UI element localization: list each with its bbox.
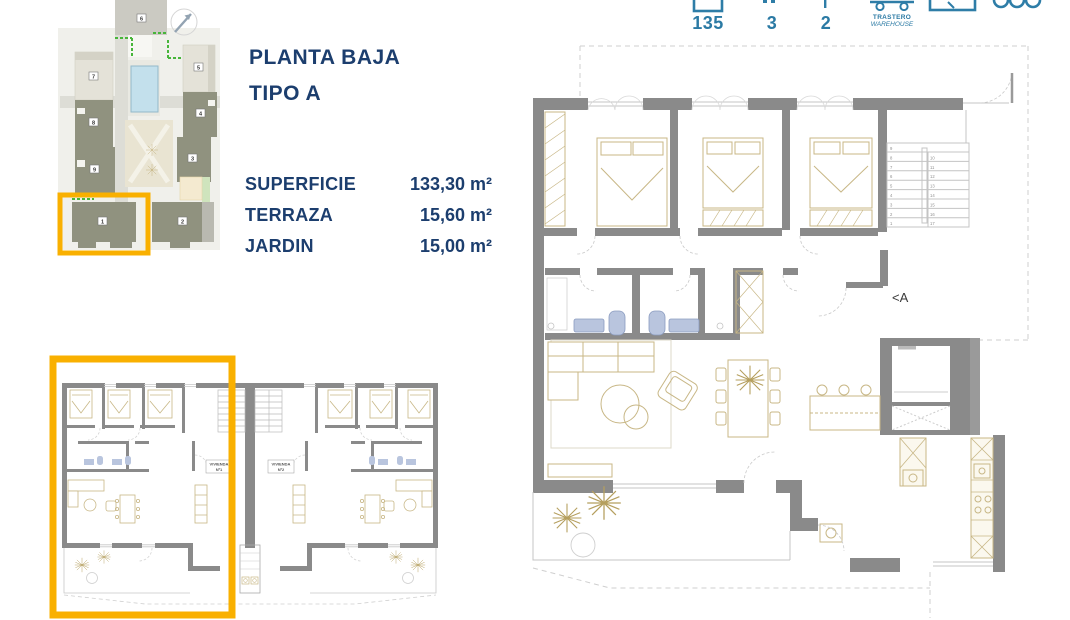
elevator (892, 346, 950, 430)
svg-text:8: 8 (890, 155, 893, 160)
stat-bathrooms: 2 (806, 0, 846, 34)
pool-waves-icon (992, 0, 1042, 10)
main-floor-plan: 9 8 7 6 5 4 3 2 1 10 11 12 13 14 15 16 1… (528, 40, 1045, 618)
laundry (820, 438, 926, 542)
spec-row-superficie: SUPERFICIE 133,30 m² (245, 174, 492, 205)
sofa (548, 340, 671, 448)
stat-built-area: 135 (688, 0, 728, 34)
bathrooms-value: 2 (806, 13, 846, 34)
unit1-label-line2: Nº1 (216, 467, 223, 472)
bed (703, 138, 763, 226)
unit1-label-line1: VIVIENDA (210, 462, 229, 467)
kitchen-island (810, 385, 880, 430)
closet (736, 271, 763, 333)
sideboard (548, 464, 612, 477)
kitchen-counter (971, 438, 993, 558)
svg-text:1: 1 (890, 221, 893, 226)
site-number-8: 8 (92, 120, 95, 126)
coffee-table (624, 405, 648, 429)
spec-label: TERRAZA (245, 205, 333, 226)
svg-text:9: 9 (890, 146, 893, 151)
page-title: PLANTA BAJA (249, 46, 400, 70)
units-garden-boundary (64, 595, 436, 604)
svg-text:4: 4 (890, 193, 893, 198)
spec-row-terraza: TERRAZA 15,60 m² (245, 205, 492, 236)
property-boundary (533, 46, 1028, 618)
site-number-3: 3 (191, 156, 194, 162)
site-number-5: 5 (197, 65, 200, 71)
svg-text:16: 16 (930, 212, 935, 217)
page-subtitle: TIPO A (249, 82, 400, 106)
bed-icon (756, 0, 788, 4)
svg-text:10: 10 (930, 155, 935, 160)
section-label: <A (892, 290, 909, 305)
svg-text:6: 6 (890, 174, 893, 179)
spec-label: SUPERFICIE (245, 174, 356, 195)
site-number-9: 9 (93, 167, 96, 173)
site-plan: 6 7 8 9 5 4 3 1 2 (20, 0, 230, 256)
site-pool (131, 66, 158, 112)
svg-text:11: 11 (930, 165, 935, 170)
area-value: 135 (688, 13, 728, 34)
svg-text:12: 12 (930, 174, 935, 179)
storage-icon (866, 0, 918, 11)
stat-bedrooms: 3 (752, 0, 792, 34)
svg-text:13: 13 (930, 184, 935, 189)
spec-row-jardin: JARDIN 15,00 m² (245, 236, 492, 267)
terrace-icon (928, 0, 978, 12)
brochure-page: 135 3 2 TRASTERO WAREHOUSE (0, 0, 1070, 620)
spec-value: 15,00 m² (420, 236, 492, 257)
armchair (656, 369, 699, 411)
unit2-label-line1: VIVIENDA (272, 462, 291, 467)
area-square-icon (692, 0, 724, 13)
stair-numbers: 9 8 7 6 5 4 3 2 1 10 11 12 13 14 15 16 1… (890, 146, 935, 226)
curtains (588, 96, 853, 110)
bedrooms-value: 3 (752, 13, 792, 34)
units-floor-plan: VIVIENDA Nº1 VIVIENDA Nº2 (40, 345, 470, 620)
plan-title: PLANTA BAJA TIPO A (249, 46, 400, 106)
site-number-7: 7 (92, 74, 95, 80)
site-number-1: 1 (101, 219, 104, 225)
bath-icon (810, 0, 842, 8)
unit2-label-line2: Nº2 (278, 467, 285, 472)
svg-text:15: 15 (930, 202, 935, 207)
svg-text:5: 5 (890, 184, 893, 189)
svg-text:2: 2 (890, 212, 893, 217)
site-number-6: 6 (140, 16, 143, 22)
bed (810, 138, 872, 226)
svg-text:3: 3 (890, 202, 893, 207)
stat-storage: TRASTERO WAREHOUSE (862, 0, 922, 28)
spec-table: SUPERFICIE 133,30 m² TERRAZA 15,60 m² JA… (245, 174, 492, 267)
svg-text:17: 17 (930, 221, 935, 226)
dining-table (716, 360, 780, 437)
storage-label: TRASTERO (862, 14, 922, 21)
wardrobe (545, 112, 565, 226)
coffee-table (601, 385, 639, 423)
svg-text:14: 14 (930, 193, 935, 198)
spec-label: JARDIN (245, 236, 314, 257)
svg-text:7: 7 (890, 165, 893, 170)
bed (597, 138, 667, 226)
site-number-2: 2 (181, 219, 184, 225)
shared-core (240, 545, 260, 593)
storage-label-en: WAREHOUSE (862, 21, 922, 28)
spec-value: 133,30 m² (410, 174, 492, 195)
spec-value: 15,60 m² (420, 205, 492, 226)
